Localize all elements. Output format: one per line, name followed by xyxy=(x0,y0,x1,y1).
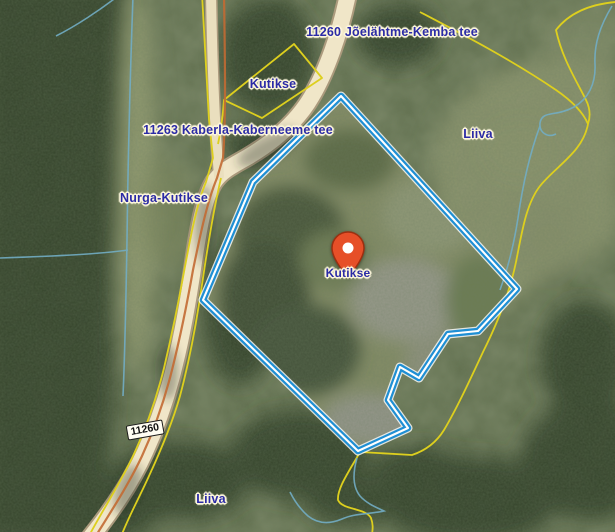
map-viewport[interactable]: 11260 Jõelähtme-Kemba tee Kutikse 11263 … xyxy=(0,0,615,532)
label-liiva-bottom: Liiva xyxy=(196,492,226,506)
label-road-kemba: 11260 Jõelähtme-Kemba tee xyxy=(306,25,478,39)
label-liiva-right: Liiva xyxy=(463,127,493,141)
label-road-kaberneeme: 11263 Kaberla-Kaberneeme tee xyxy=(143,123,333,137)
label-kutikse-top: Kutikse xyxy=(250,77,297,91)
terrain-base xyxy=(0,0,615,532)
label-marker-kutikse: Kutikse xyxy=(326,266,371,280)
map-canvas xyxy=(0,0,615,532)
label-nurga-kutikse: Nurga-Kutikse xyxy=(120,191,208,205)
